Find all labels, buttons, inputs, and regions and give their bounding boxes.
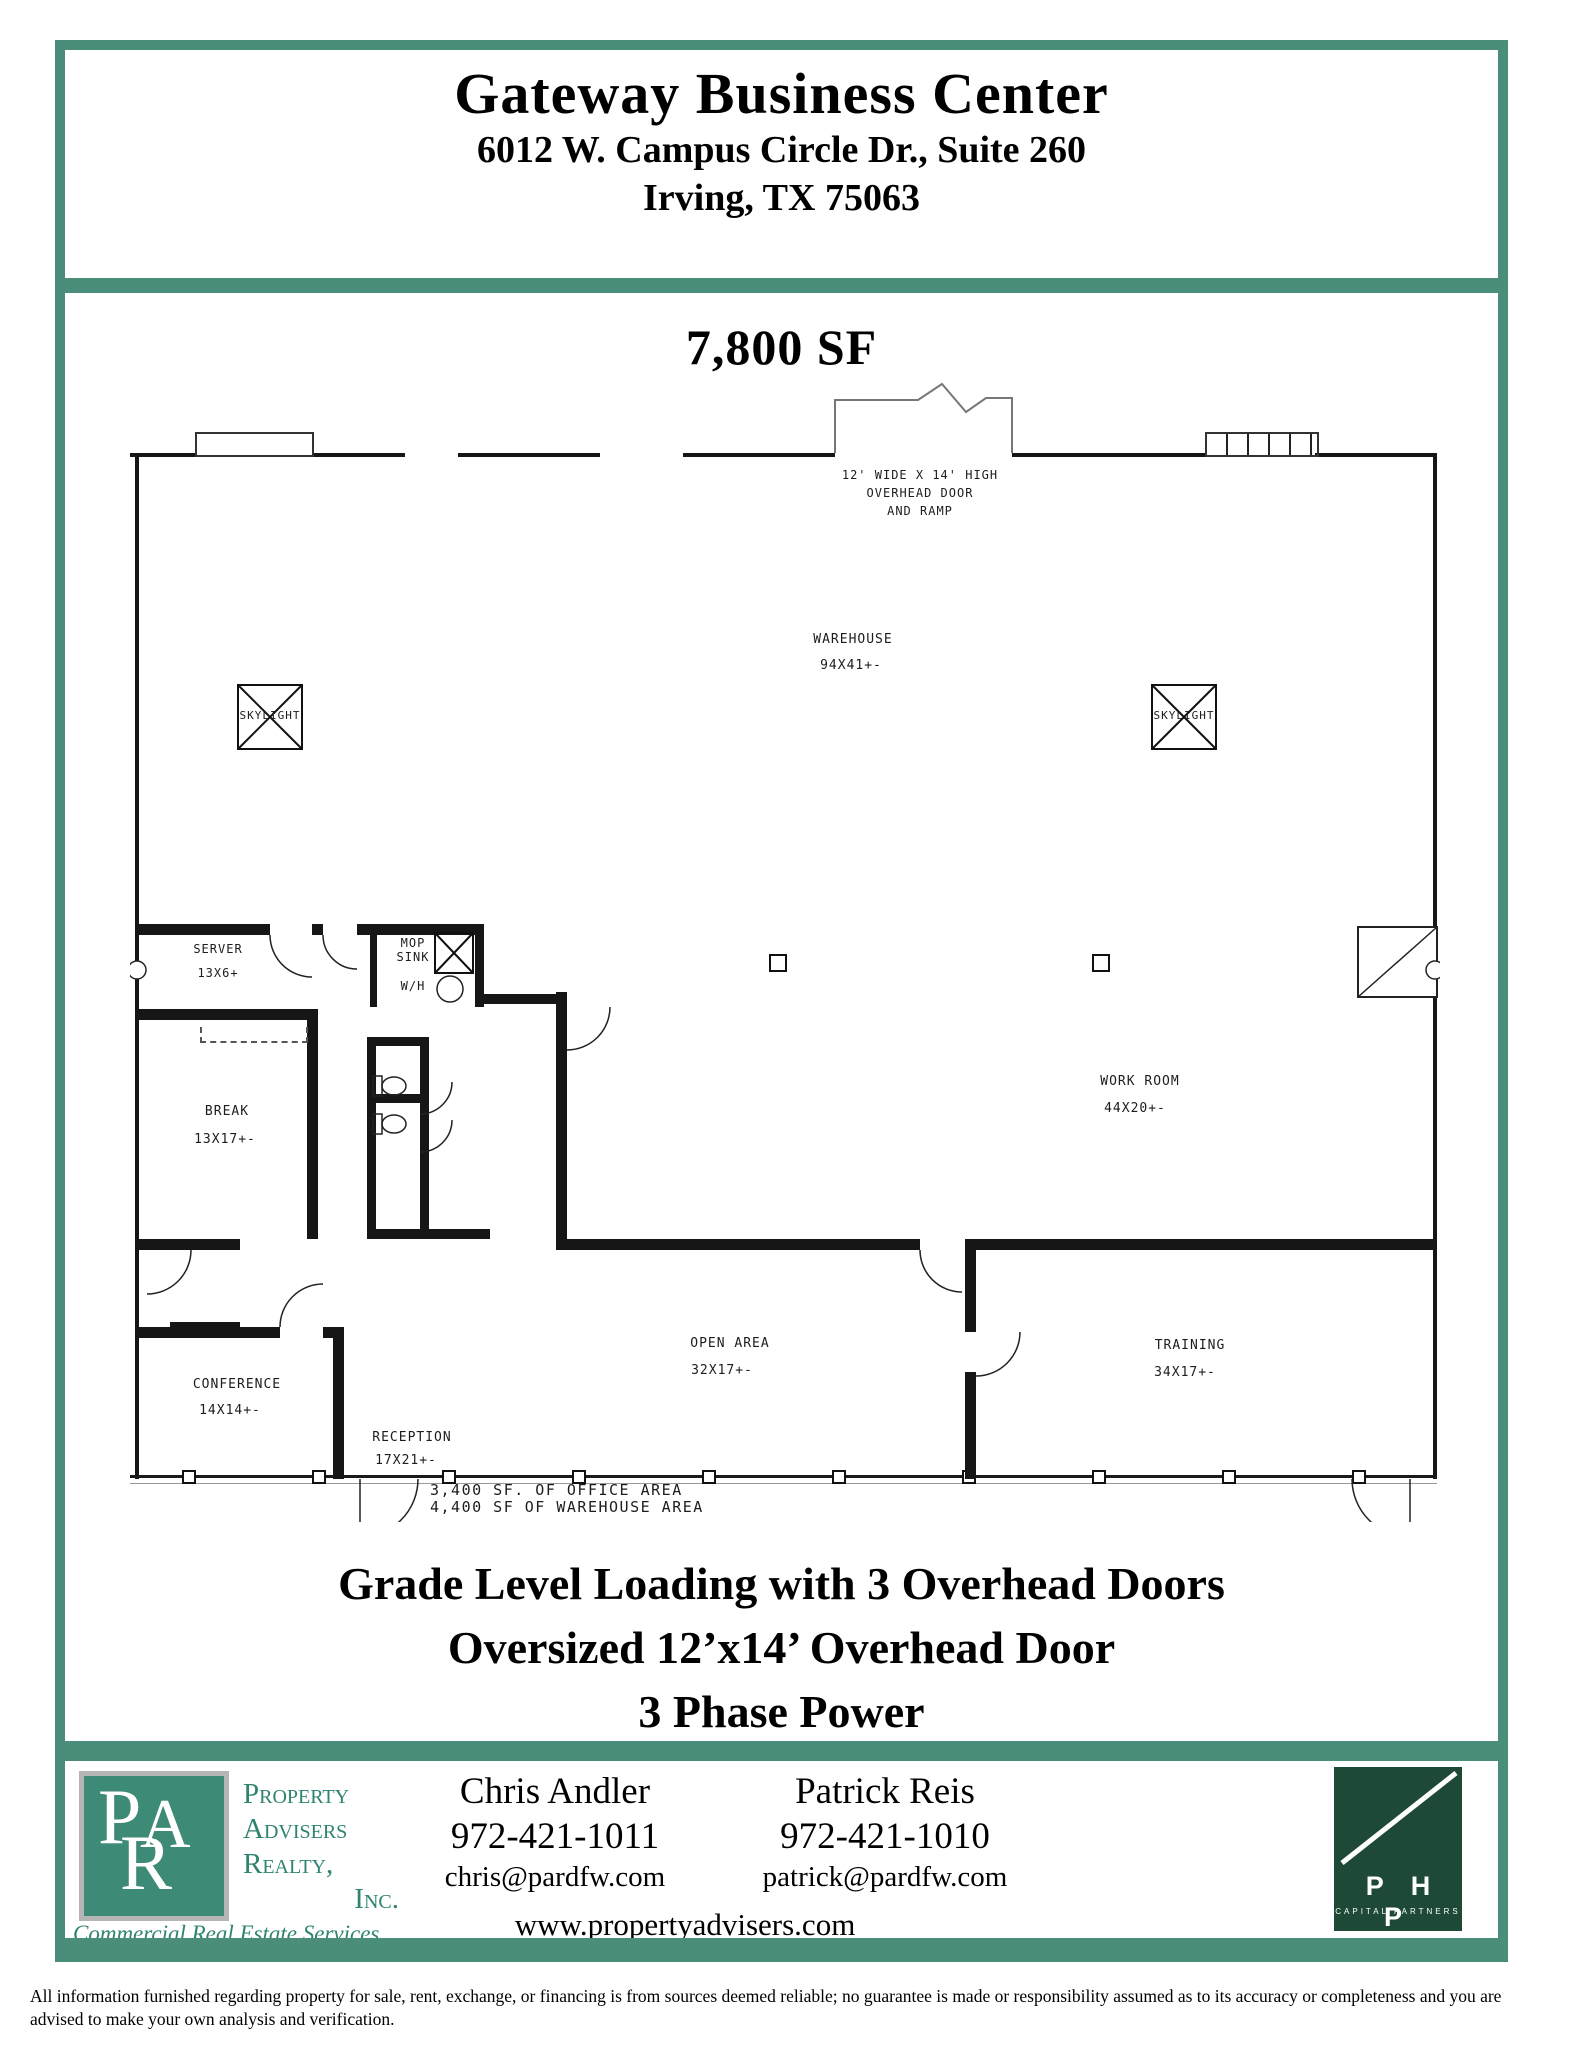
skylight-label: SKYLIGHT	[1154, 709, 1215, 722]
par-company-name: Property Advisers Realty, Inc.	[243, 1777, 413, 1917]
feature-line: Oversized 12’x14’ Overhead Door	[65, 1616, 1498, 1680]
flyer-page: { "header": { "title": "Gateway Business…	[0, 0, 1583, 2048]
room-label-training: TRAINING	[1155, 1338, 1226, 1353]
par-logo: P A R	[79, 1771, 229, 1921]
contact-email: patrick@pardfw.com	[725, 1859, 1045, 1895]
area-note: 3,400 SF. OF OFFICE AREA	[430, 1481, 683, 1499]
room-dims-reception: 17X21+-	[375, 1453, 437, 1468]
footer-top-bar	[65, 1741, 1498, 1761]
par-name-line: Advisers	[243, 1812, 413, 1847]
feature-line: 3 Phase Power	[65, 1680, 1498, 1744]
par-name-line: Property	[243, 1777, 413, 1812]
room-label-open-area: OPEN AREA	[690, 1336, 769, 1351]
room-label-warehouse: WAREHOUSE	[813, 632, 892, 647]
page-title: Gateway Business Center	[65, 62, 1498, 126]
room-dims-open-area: 32X17+-	[691, 1363, 753, 1378]
overhead-door-outline	[835, 384, 1012, 453]
disclaimer-text: All information furnished regarding prop…	[30, 1985, 1553, 2031]
room-label-break: BREAK	[205, 1104, 249, 1119]
contact-card: Chris Andler 972-421-1011 chris@pardfw.c…	[395, 1769, 715, 1895]
contact-name: Patrick Reis	[725, 1769, 1045, 1814]
php-logo: P H P CAPITAL PARTNERS	[1334, 1767, 1462, 1931]
water-heater-icon	[437, 976, 463, 1002]
feature-list: Grade Level Loading with 3 Overhead Door…	[65, 1552, 1498, 1744]
room-dims-training: 34X17+-	[1154, 1365, 1216, 1380]
floor-plan: 12' WIDE X 14' HIGH OVERHEAD DOOR AND RA…	[130, 382, 1440, 1522]
room-label-work-room: WORK ROOM	[1100, 1074, 1179, 1089]
room-dims-work-room: 44X20+-	[1104, 1101, 1166, 1116]
address-line1: 6012 W. Campus Circle Dr., Suite 260	[65, 126, 1498, 174]
contact-name: Chris Andler	[395, 1769, 715, 1814]
overhead-door-note: AND RAMP	[887, 504, 953, 518]
contact-phone: 972-421-1010	[725, 1814, 1045, 1859]
php-logo-subtitle: CAPITAL PARTNERS	[1334, 1907, 1462, 1916]
room-dims-break: 13X17+-	[194, 1132, 256, 1147]
par-logo-letter: R	[120, 1824, 172, 1902]
contact-email: chris@pardfw.com	[395, 1859, 715, 1895]
header-divider-bar	[65, 278, 1498, 293]
php-logo-text: P H P	[1334, 1871, 1462, 1933]
room-dims-server: 13X6+	[197, 966, 238, 980]
room-dims-warehouse: 94X41+-	[820, 658, 882, 673]
mop-sink-label: MOP	[401, 936, 426, 950]
address-line2: Irving, TX 75063	[65, 174, 1498, 222]
room-label-reception: RECEPTION	[372, 1430, 451, 1445]
toilet-icon	[373, 1076, 406, 1134]
overhead-door-note: OVERHEAD DOOR	[867, 486, 974, 500]
room-dims-conference: 14X14+-	[199, 1403, 261, 1418]
plan-linework	[130, 382, 1440, 1522]
feature-line: Grade Level Loading with 3 Overhead Door…	[65, 1552, 1498, 1616]
par-name-line: Realty,	[243, 1847, 413, 1882]
footer: P A R Property Advisers Realty, Inc. Com…	[65, 1761, 1498, 1938]
mop-sink-label: SINK	[397, 950, 430, 964]
header: Gateway Business Center 6012 W. Campus C…	[65, 62, 1498, 222]
door-arc	[147, 935, 1410, 1522]
overhead-door-note: 12' WIDE X 14' HIGH	[842, 468, 998, 482]
footer-bottom-bar	[65, 1938, 1498, 1952]
water-heater-label: W/H	[401, 979, 426, 993]
area-note: 4,400 SF OF WAREHOUSE AREA	[430, 1498, 704, 1516]
square-footage-heading: 7,800 SF	[65, 318, 1498, 376]
contact-phone: 972-421-1011	[395, 1814, 715, 1859]
contact-card: Patrick Reis 972-421-1010 patrick@pardfw…	[725, 1769, 1045, 1895]
right-wall-notch	[1358, 927, 1437, 997]
room-label-server: SERVER	[193, 942, 242, 956]
room-label-conference: CONFERENCE	[193, 1377, 281, 1392]
column-icon	[770, 955, 1109, 971]
skylight-label: SKYLIGHT	[240, 709, 301, 722]
mop-sink-icon	[435, 933, 473, 973]
